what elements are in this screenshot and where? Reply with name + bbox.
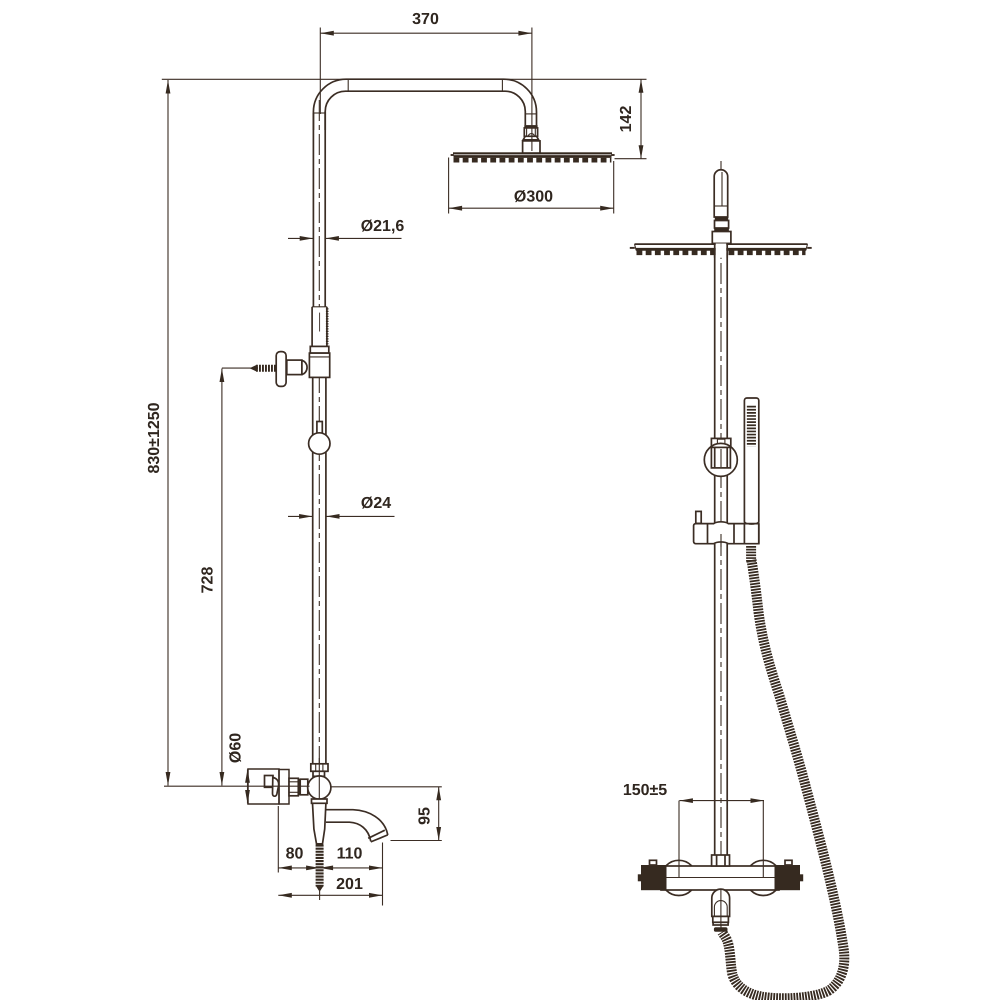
- svg-text:Ø60: Ø60: [228, 733, 245, 763]
- svg-text:201: 201: [336, 876, 363, 893]
- svg-text:Ø300: Ø300: [514, 189, 553, 206]
- svg-text:150±5: 150±5: [623, 782, 667, 799]
- svg-text:Ø21,6: Ø21,6: [361, 218, 405, 235]
- svg-text:142: 142: [618, 106, 635, 133]
- svg-text:370: 370: [412, 11, 439, 28]
- svg-text:80: 80: [286, 846, 304, 863]
- svg-text:830±1250: 830±1250: [146, 402, 163, 473]
- svg-text:95: 95: [417, 807, 434, 825]
- svg-text:Ø24: Ø24: [361, 495, 391, 512]
- svg-text:110: 110: [337, 846, 363, 863]
- svg-text:728: 728: [200, 567, 217, 594]
